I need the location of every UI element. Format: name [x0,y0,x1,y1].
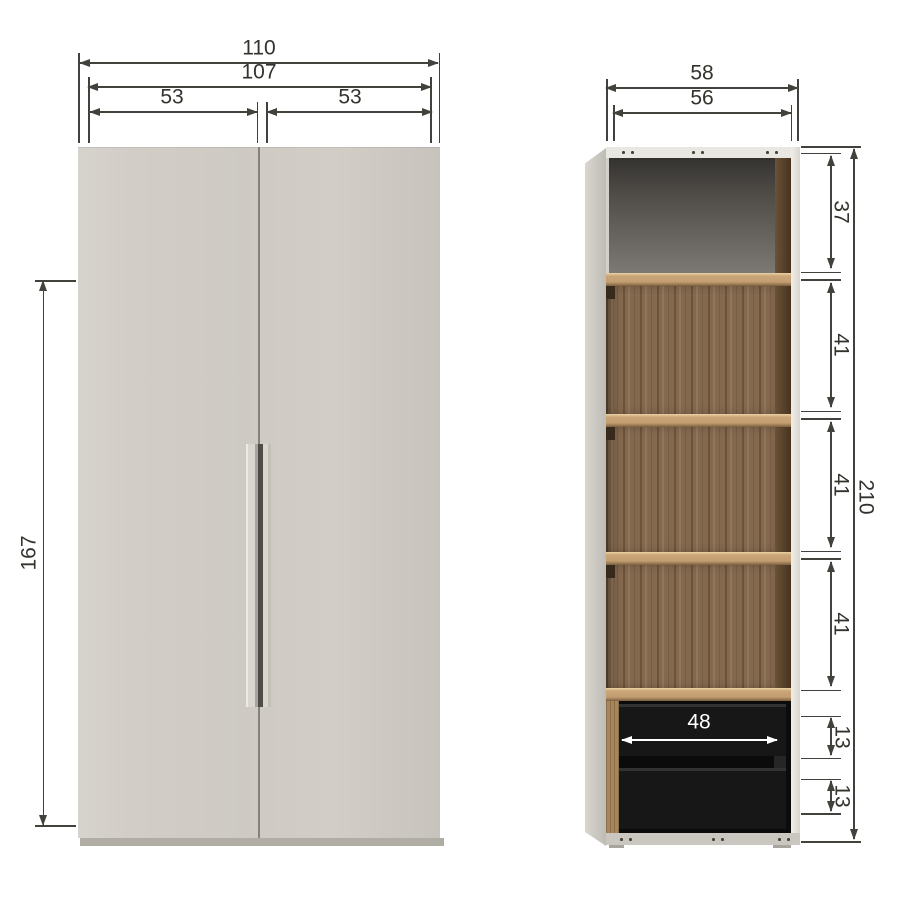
dim-label-drawer-width: 48 [687,712,710,733]
dimension-line-left-door [90,111,257,113]
dim-label-drawer-1: 13 [832,725,853,748]
witness-line [801,758,841,760]
dimension-line-right-door [267,111,432,113]
drawer-left-rail [606,701,619,833]
dim-label-compartment-1: 41 [831,333,852,356]
screw-dots [620,838,623,841]
screw-dots [622,151,625,154]
door-handle-left [246,444,258,707]
dimension-line-inner-width [88,86,431,88]
dim-label-overall-depth: 58 [690,63,713,84]
witness-line [801,279,841,281]
compartment-2 [606,427,791,552]
dim-label-left-door-width: 53 [160,87,183,108]
shelf-bracket [606,565,615,578]
dim-label-inner-width: 107 [241,62,276,83]
witness-line [801,558,841,560]
dim-label-right-door-width: 53 [338,87,361,108]
shelf [606,414,791,427]
dim-label-inner-depth: 56 [690,88,713,109]
cabinet-side-panel [585,148,606,846]
witness-line [801,841,861,843]
witness-line [801,153,841,155]
door-handle-right [263,444,271,707]
dim-label-overall-width: 110 [242,38,275,59]
compartment-3 [606,565,791,688]
dimension-line-inner-depth [613,112,791,114]
dimension-line-drawer-width [622,739,777,741]
witness-line [801,272,841,274]
dim-label-total-height: 210 [856,479,877,514]
dim-label-door-height: 167 [19,535,40,570]
inner-left-edge [606,158,609,273]
wardrobe-front-bottom-shadow [80,838,444,846]
compartment-1 [606,286,791,414]
shelf [606,273,791,286]
top-compartment [606,158,791,273]
dim-label-top-compartment: 37 [831,200,852,223]
dim-label-compartment-2: 41 [831,473,852,496]
witness-line [801,813,841,815]
cabinet-foot [773,845,791,848]
inner-right-wall [775,158,791,701]
witness-line [801,411,841,413]
shelf [606,688,791,701]
cabinet-top-edge [606,147,800,158]
cabinet-foot [609,845,624,848]
drawer-bottom [619,768,786,829]
cabinet-base [606,833,800,845]
witness-line [801,690,841,692]
dim-label-compartment-3: 41 [831,612,852,635]
shelf-bracket [606,427,615,440]
shelf-bracket [606,286,615,299]
witness-line [801,716,841,718]
technical-drawing-canvas: 110 107 53 53 167 [0,0,907,907]
witness-line [801,779,841,781]
dimension-line-door-height [43,281,45,825]
witness-line [801,551,841,553]
shelf [606,552,791,565]
dim-label-drawer-2: 13 [832,784,853,807]
cabinet-right-edge [791,147,800,845]
witness-line [801,418,841,420]
